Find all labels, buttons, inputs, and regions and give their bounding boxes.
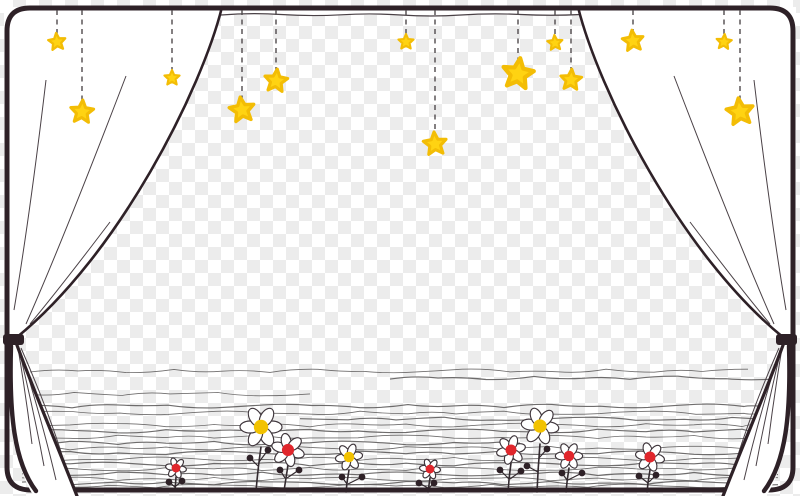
ground-squiggle-line	[26, 392, 310, 395]
flower-bud	[359, 474, 366, 481]
flower-bud	[497, 467, 504, 474]
ground-squiggle-line	[22, 472, 778, 476]
ground-squiggle-line	[22, 451, 778, 455]
flower-center	[505, 444, 516, 455]
flower-bud	[416, 480, 423, 487]
flower-bud	[166, 479, 173, 486]
star-icon	[229, 97, 254, 121]
flower-center	[644, 451, 655, 462]
right-curtain-flare	[722, 336, 790, 496]
flower-center	[533, 419, 546, 432]
ground-squiggle-line	[390, 376, 770, 380]
flower-center	[426, 465, 435, 474]
ground-squiggle-line	[22, 477, 778, 481]
flower-bud	[179, 478, 186, 485]
flower-bud	[247, 455, 254, 462]
left-curtain-fill	[4, 7, 222, 338]
star-icon	[504, 58, 534, 88]
flower-bud	[431, 480, 438, 487]
star-icon	[398, 34, 413, 49]
right-curtain	[578, 7, 796, 338]
flower-bud	[524, 463, 531, 470]
flower-bud	[579, 470, 586, 477]
ground-squiggle-line	[22, 467, 778, 471]
flower-stem	[537, 444, 540, 492]
ground-squiggle-line	[30, 369, 748, 373]
stage-ground-lines	[22, 369, 778, 488]
flower-bud	[296, 467, 303, 474]
left-curtain-flare	[10, 336, 78, 496]
flower-center	[282, 444, 294, 456]
flower-bud	[559, 470, 566, 477]
flower-bud	[653, 472, 660, 479]
flower-bud	[277, 467, 284, 474]
star-icon	[265, 69, 288, 91]
ground-squiggle-line	[22, 481, 778, 485]
ground-squiggle-line	[22, 423, 778, 427]
ground-squiggle-line	[24, 404, 776, 408]
ground-squiggle-line	[22, 462, 778, 466]
curtain-tieback-knot	[776, 334, 797, 345]
flower-center	[344, 452, 354, 462]
curtain-tieback-knot	[3, 334, 24, 345]
ground-squiggle-line	[60, 484, 740, 488]
left-curtain	[4, 7, 222, 338]
ground-squiggle-line	[22, 429, 778, 433]
flower-bud	[518, 468, 525, 475]
star-icon	[423, 132, 446, 154]
flower-bud	[265, 447, 272, 454]
flower-center	[254, 420, 268, 434]
ground-squiggle-line	[24, 411, 776, 415]
curtain-stage-illustration	[0, 0, 800, 496]
flower-bud	[544, 446, 551, 453]
star-icon	[547, 35, 562, 50]
star-icon	[561, 69, 582, 89]
flower-bud	[339, 474, 346, 481]
right-curtain-fill	[578, 7, 796, 338]
ground-squiggle-line	[22, 435, 778, 439]
transparency-checkerboard-canvas	[0, 0, 800, 496]
ground-squiggle-line	[22, 446, 778, 450]
flower-center	[172, 464, 181, 473]
flower-center	[564, 451, 574, 461]
flower-bud	[636, 473, 643, 480]
